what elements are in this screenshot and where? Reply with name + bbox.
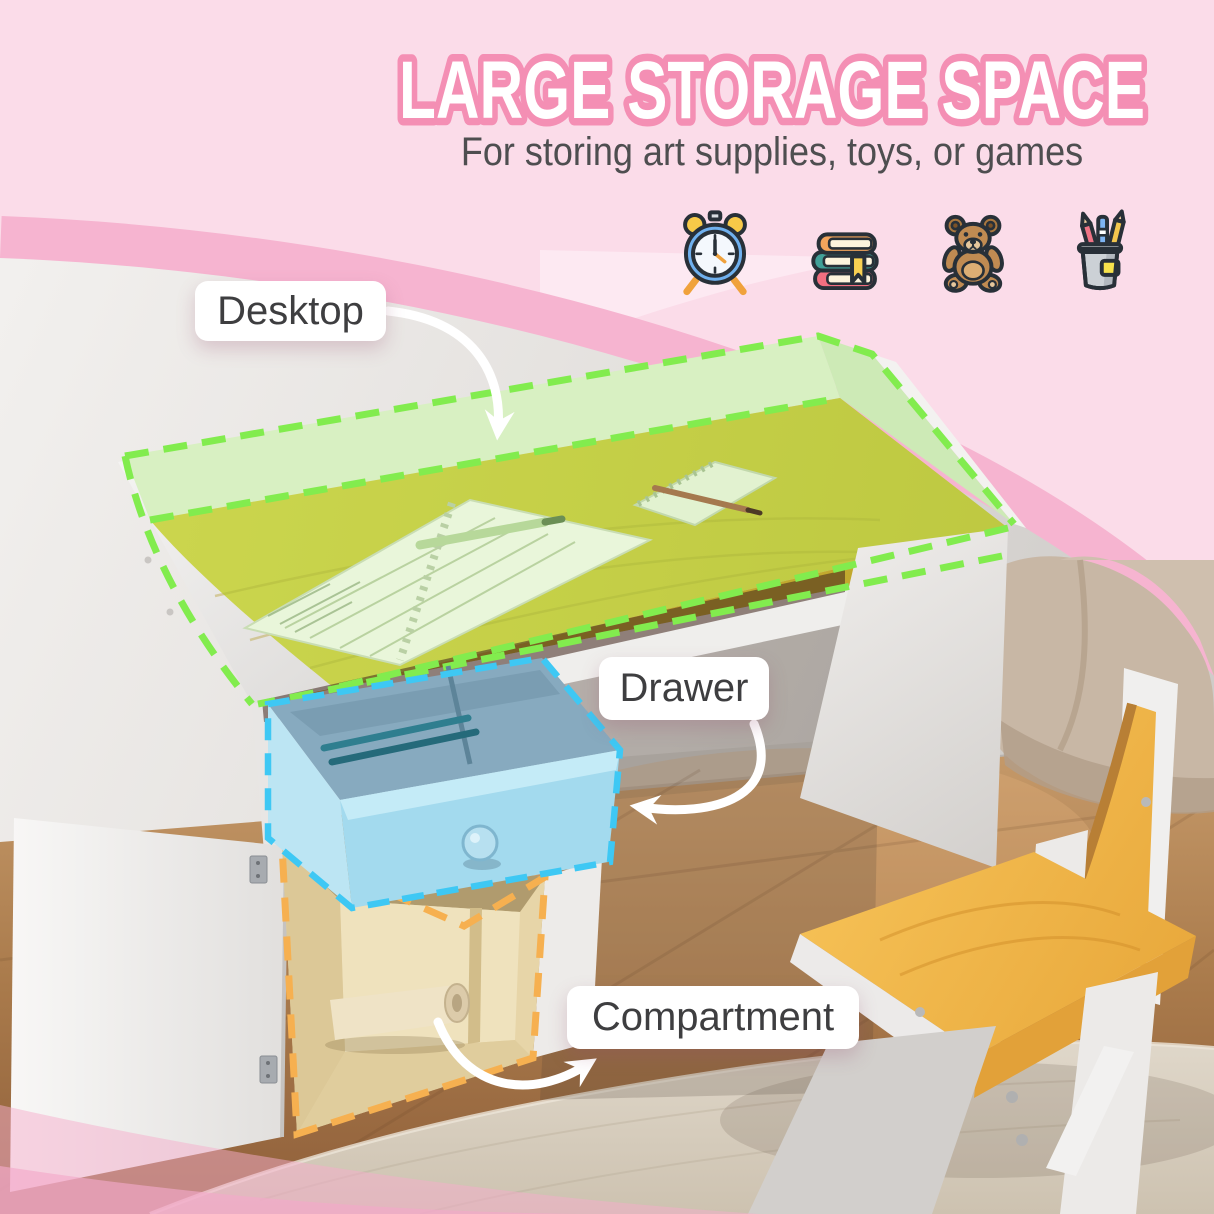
teddy-bear-icon [929, 208, 1017, 296]
headline: LARGE STORAGE SPACE [0, 38, 1214, 138]
page-subtitle: For storing art supplies, toys, or games [394, 130, 1150, 175]
pencil-holder-icon [1056, 208, 1144, 296]
drawer-label: Drawer [599, 657, 769, 720]
page-title: LARGE STORAGE SPACE [399, 45, 1145, 136]
compartment-label: Compartment [567, 986, 859, 1049]
drawer-knob [463, 826, 497, 860]
alarm-clock-icon [671, 208, 759, 296]
desktop-label: Desktop [195, 281, 386, 341]
compartment-divider [468, 908, 482, 1044]
product-infographic: LARGE STORAGE SPACE For storing art supp… [0, 0, 1214, 1214]
book-stack-icon [801, 208, 889, 296]
